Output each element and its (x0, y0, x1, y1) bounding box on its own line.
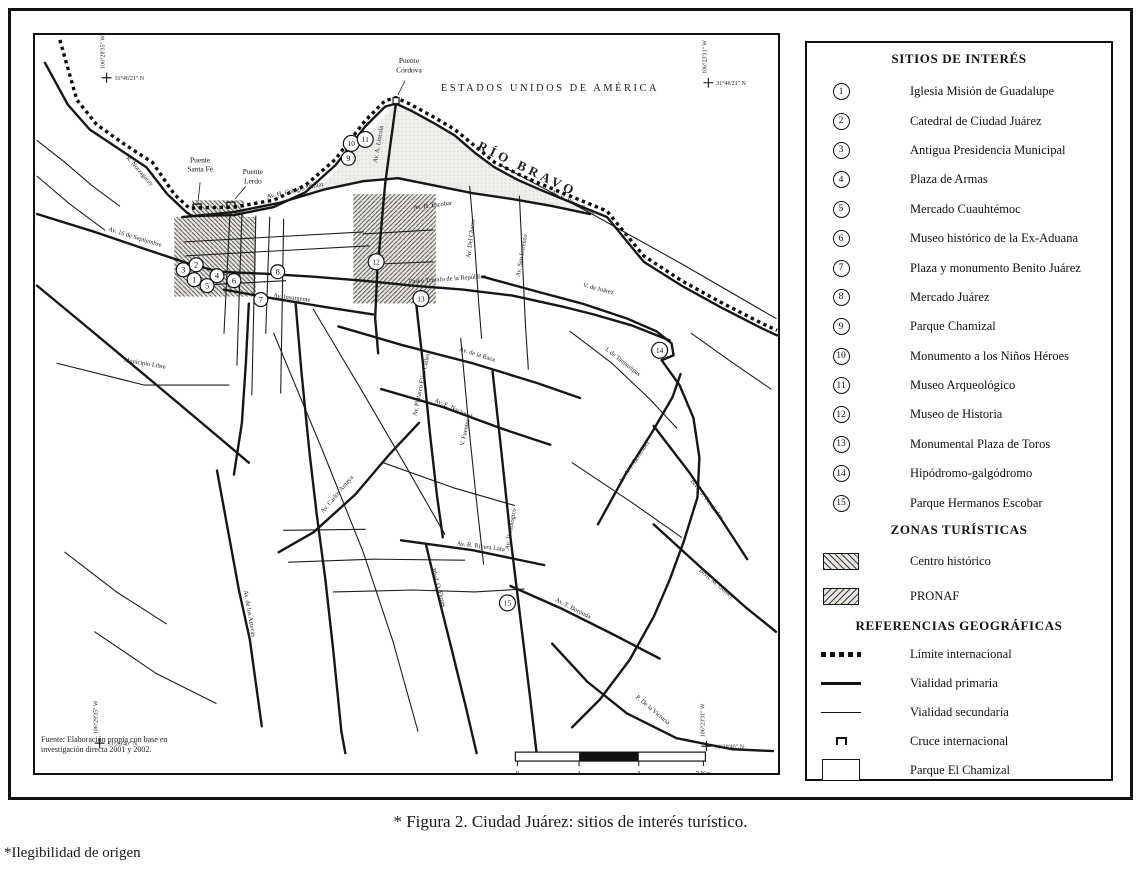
site-number: 8 (833, 289, 850, 306)
svg-text:1: 1 (192, 274, 196, 284)
legend-site-row: 8Mercado Juárez (807, 283, 1111, 312)
scale-bar: 0123 Km (515, 752, 711, 773)
site-number: 4 (833, 171, 850, 188)
svg-text:9: 9 (346, 153, 350, 163)
thin-symbol-icon (821, 712, 861, 713)
svg-text:106°28'35" W: 106°28'35" W (100, 35, 107, 69)
legend-zone-row: Centro histórico (807, 544, 1111, 579)
whitebox-symbol-icon (822, 759, 860, 781)
svg-text:Lerdo: Lerdo (244, 177, 262, 186)
corner-coordinate: 31°46'21" N106°23'31" W (701, 40, 746, 88)
bridge-lerdo: PuenteLerdo (227, 167, 264, 208)
street-label: Blvd. O. Flores (429, 567, 447, 608)
svg-text:31°46'21" N: 31°46'21" N (115, 75, 145, 82)
svg-text:Puente: Puente (190, 155, 211, 164)
bridge-symbol-icon (836, 737, 847, 745)
svg-text:10: 10 (348, 139, 356, 148)
corner-coordinate: 31°46'21" N106°28'35" W (100, 35, 145, 83)
svg-text:7: 7 (259, 294, 263, 304)
street-label: Av. Plutarco Elías Calles (411, 352, 431, 417)
svg-text:8: 8 (276, 267, 280, 277)
svg-text:3 Km: 3 Km (696, 770, 712, 773)
source-note-line2: investigación directa 2001 y 2002. (41, 745, 167, 755)
hatch-swatch-icon (823, 588, 859, 605)
street-label: Av. Carlos Amaya (319, 474, 355, 515)
legend-site-row: 14Hipódromo-galgódromo (807, 459, 1111, 488)
figure-caption: * Figura 2. Ciudad Juárez: sitios de int… (0, 812, 1141, 832)
site-number: 1 (833, 83, 850, 100)
legend-site-row: 2Catedral de Ciudad Juárez (807, 106, 1111, 135)
svg-text:15: 15 (504, 599, 512, 608)
street-label: Av. San Lorenzo (515, 234, 529, 278)
site-marker-6: 6 (227, 274, 241, 288)
site-number: 7 (833, 260, 850, 277)
site-number-box: 11 (815, 377, 867, 394)
site-label: Iglesia Misión de Guadalupe (910, 84, 1054, 99)
svg-text:2: 2 (194, 260, 198, 270)
figure-frame: 0123 Km R. NorzagarayAv. 16 de Septiembr… (8, 8, 1133, 800)
legend-refs-title: REFERENCIAS GEOGRÁFICAS (807, 618, 1111, 634)
ref-label: Vialidad primaria (910, 676, 998, 691)
svg-text:1: 1 (577, 770, 581, 773)
svg-text:11: 11 (362, 135, 369, 144)
site-marker-7: 7 (254, 293, 268, 307)
svg-text:2: 2 (637, 770, 641, 773)
legend-sites-title: SITIOS DE INTERÉS (807, 51, 1111, 67)
site-number-box: 8 (815, 289, 867, 306)
svg-text:Puente: Puente (399, 56, 420, 65)
site-label: Antigua Presidencia Municipal (910, 143, 1066, 158)
svg-text:5: 5 (205, 280, 209, 290)
site-marker-14: 14 (652, 342, 668, 358)
corner-coordinate: 31°39'40" N106°23'31" W (699, 703, 744, 751)
site-marker-13: 13 (413, 291, 429, 307)
map-svg: 0123 Km R. NorzagarayAv. 16 de Septiembr… (35, 35, 778, 773)
ref-symbol-box (815, 712, 867, 713)
site-number: 13 (833, 436, 850, 453)
ref-symbol-box (815, 759, 867, 781)
svg-text:106°23'31" W: 106°23'31" W (699, 703, 706, 737)
hatch-swatch-icon (823, 553, 859, 570)
country-label: ESTADOS UNIDOS DE AMÉRICA (395, 83, 705, 94)
site-number-box: 12 (815, 406, 867, 423)
legend-site-row: 3Antigua Presidencia Municipal (807, 136, 1111, 165)
street-label: Municipio Libre (123, 357, 166, 371)
svg-text:0: 0 (516, 770, 520, 773)
legend-ref-row: Vialidad primaria (807, 669, 1111, 698)
site-label: Parque Hermanos Escobar (910, 496, 1043, 511)
site-number-box: 3 (815, 142, 867, 159)
street-label: V. de Juárez (582, 282, 614, 296)
ref-label: Cruce internacional (910, 734, 1008, 749)
svg-text:13: 13 (417, 294, 425, 303)
site-number-box: 15 (815, 495, 867, 512)
site-label: Catedral de Ciudad Juárez (910, 114, 1042, 129)
legend-ref-row: Parque El Chamizal (807, 756, 1111, 785)
ref-symbol-box (815, 652, 867, 657)
site-number: 6 (833, 230, 850, 247)
svg-text:Santa Fé: Santa Fé (187, 165, 214, 174)
site-label: Museo de Historia (910, 407, 1002, 422)
legend-refs-list: Límite internacionalVialidad primariaVia… (807, 640, 1111, 785)
street-label: P. De la Victoria (634, 694, 671, 727)
legibility-footnote: *Ilegibilidad de origen (4, 845, 141, 862)
svg-text:14: 14 (656, 346, 664, 355)
street-label: Av. Tecnológico (504, 508, 518, 550)
site-marker-5: 5 (200, 279, 214, 293)
site-number-box: 10 (815, 348, 867, 365)
street-label: Blvd. M. Gómez (697, 567, 735, 600)
legend-sites-list: 1Iglesia Misión de Guadalupe2Catedral de… (807, 77, 1111, 518)
site-number: 5 (833, 201, 850, 218)
site-label: Monumento a los Niños Héroes (910, 349, 1069, 364)
site-label: Plaza de Armas (910, 172, 988, 187)
site-label: Parque Chamizal (910, 319, 996, 334)
ref-symbol-box (815, 682, 867, 685)
site-number: 15 (833, 495, 850, 512)
svg-text:106°23'31" W: 106°23'31" W (701, 40, 708, 74)
page: { "figure": { "caption": "* Figura 2. Ci… (0, 0, 1141, 877)
site-number: 3 (833, 142, 850, 159)
site-label: Hipódromo-galgódromo (910, 466, 1032, 481)
legend-zones-list: Centro históricoPRONAF (807, 544, 1111, 614)
source-note: Fuente: Elaboración propia con base en i… (41, 735, 167, 755)
legend-site-row: 13Monumental Plaza de Toros (807, 430, 1111, 459)
svg-text:3: 3 (181, 265, 185, 275)
bridge-icon (393, 98, 399, 104)
legend-ref-row: Vialidad secundaria (807, 698, 1111, 727)
dotted-symbol-icon (821, 652, 861, 657)
site-marker-15: 15 (499, 595, 515, 611)
site-label: Mercado Cuauhtémoc (910, 202, 1021, 217)
svg-text:12: 12 (372, 258, 380, 267)
street-label: Blvd. T. Fernández (689, 478, 725, 521)
legend-zones-title: ZONAS TURÍSTICAS (807, 522, 1111, 538)
site-label: Museo Arqueológico (910, 378, 1015, 393)
site-number-box: 1 (815, 83, 867, 100)
site-number-box: 7 (815, 260, 867, 277)
legend-site-row: 12Museo de Historia (807, 400, 1111, 429)
svg-text:Puente: Puente (243, 167, 264, 176)
site-number-box: 13 (815, 436, 867, 453)
ref-symbol-box (815, 737, 867, 745)
site-number-box: 4 (815, 171, 867, 188)
site-number: 2 (833, 113, 850, 130)
scale-labels: 0123 Km (516, 770, 712, 773)
site-marker-1: 1 (187, 273, 201, 287)
site-number-box: 9 (815, 318, 867, 335)
site-label: Plaza y monumento Benito Juárez (910, 261, 1081, 276)
site-label: Mercado Juárez (910, 290, 989, 305)
zone-label: Centro histórico (910, 554, 991, 569)
site-marker-11: 11 (357, 131, 373, 147)
legend-site-row: 11Museo Arqueológico (807, 371, 1111, 400)
svg-text:106°29'35" W: 106°29'35" W (93, 700, 100, 734)
site-marker-2: 2 (189, 258, 203, 272)
legend-site-row: 7Plaza y monumento Benito Juárez (807, 253, 1111, 282)
site-marker-12: 12 (368, 254, 384, 270)
site-number-box: 14 (815, 465, 867, 482)
legend-panel: SITIOS DE INTERÉS 1Iglesia Misión de Gua… (805, 41, 1113, 781)
svg-text:31°39'40" N: 31°39'40" N (714, 744, 744, 751)
thick-symbol-icon (821, 682, 861, 685)
site-number: 10 (833, 348, 850, 365)
legend-zone-row: PRONAF (807, 579, 1111, 614)
legend-site-row: 6Museo histórico de la Ex-Aduana (807, 224, 1111, 253)
site-label: Museo histórico de la Ex-Aduana (910, 231, 1078, 246)
zone-swatch-box (815, 553, 867, 570)
legend-ref-row: Límite internacional (807, 640, 1111, 669)
site-number: 11 (833, 377, 850, 394)
site-number-box: 5 (815, 201, 867, 218)
site-marker-3: 3 (176, 263, 190, 277)
svg-text:Córdova: Córdova (396, 65, 422, 74)
legend-site-row: 9Parque Chamizal (807, 312, 1111, 341)
site-label: Monumental Plaza de Toros (910, 437, 1050, 452)
site-number-box: 6 (815, 230, 867, 247)
street-label: Av. A. J. Bermúdez (618, 439, 652, 484)
ref-label: Parque El Chamizal (910, 763, 1010, 778)
svg-text:31°46'21" N: 31°46'21" N (716, 80, 746, 87)
zone-swatch-box (815, 588, 867, 605)
site-marker-8: 8 (271, 265, 285, 279)
site-number: 14 (833, 465, 850, 482)
source-note-line1: Fuente: Elaboración propia con base en (41, 735, 167, 745)
site-number: 12 (833, 406, 850, 423)
map-panel: 0123 Km R. NorzagarayAv. 16 de Septiembr… (33, 33, 780, 775)
legend-site-row: 4Plaza de Armas (807, 165, 1111, 194)
legend-site-row: 5Mercado Cuauhtémoc (807, 195, 1111, 224)
legend-site-row: 15Parque Hermanos Escobar (807, 488, 1111, 517)
site-number: 9 (833, 318, 850, 335)
legend-site-row: 10Monumento a los Niños Héroes (807, 342, 1111, 371)
legend-site-row: 1Iglesia Misión de Guadalupe (807, 77, 1111, 106)
ref-label: Límite internacional (910, 647, 1012, 662)
zone-label: PRONAF (910, 589, 959, 604)
svg-text:6: 6 (232, 275, 236, 285)
site-number-box: 2 (815, 113, 867, 130)
ref-label: Vialidad secundaria (910, 705, 1009, 720)
site-marker-9: 9 (341, 151, 355, 165)
plus-icon (102, 73, 112, 83)
legend-ref-row: Cruce internacional (807, 727, 1111, 756)
